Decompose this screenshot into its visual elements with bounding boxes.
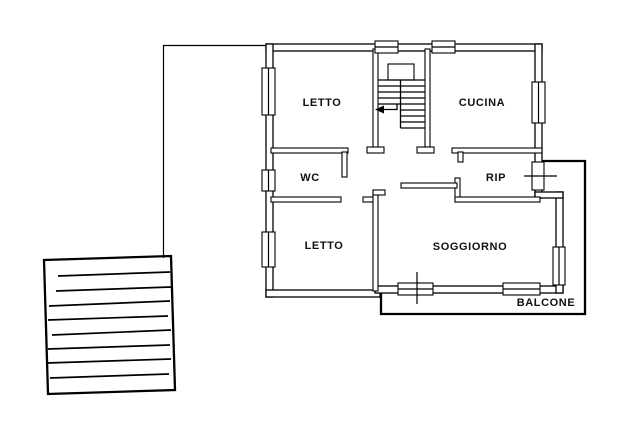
floor-plan-page: LETTO CUCINA WC RIP LETTO SOGGIORNO BALC… [0, 0, 640, 427]
wall-livingroom-left [373, 190, 378, 291]
wall-stair-left-foot [367, 147, 384, 153]
interior-walls [271, 49, 542, 291]
room-label-living-room: SOGGIORNO [433, 241, 507, 253]
wall-stair-left [373, 49, 378, 149]
wall-storage-bottom [455, 197, 540, 202]
room-labels: LETTO CUCINA WC RIP LETTO SOGGIORNO BALC… [300, 97, 575, 309]
room-label-bedroom-1: LETTO [303, 97, 342, 109]
wall-bottom-bedroom2 [266, 290, 380, 297]
wall-kitchen-bottom [452, 148, 542, 153]
wall-top [266, 44, 542, 51]
room-label-storage: RIP [486, 172, 506, 184]
wall-hall-livingroom [401, 183, 457, 188]
window-bedroom1-left [262, 68, 275, 115]
room-label-kitchen: CUCINA [459, 97, 505, 109]
terrace-boundary-lines [164, 45, 268, 258]
floor-plan-drawing: LETTO CUCINA WC RIP LETTO SOGGIORNO BALC… [0, 0, 640, 427]
exterior-walls [266, 44, 563, 297]
stair-treads [378, 80, 425, 128]
window-stairwell-top [375, 41, 398, 53]
window-kitchen-right [532, 82, 545, 123]
canopy-hatch-lines [47, 272, 171, 378]
window-livingroom-bottom [503, 283, 540, 295]
room-label-bathroom: WC [300, 172, 320, 184]
wall-bedroom1-bottom [271, 148, 348, 153]
window-kitchen-top [432, 41, 455, 53]
french-door-livingroom-bottom [398, 272, 433, 304]
wall-kitchen-door-jamb [458, 152, 463, 162]
room-label-bedroom-2: LETTO [305, 240, 344, 252]
wall-stair-right [425, 49, 430, 147]
wall-wc-right [342, 152, 347, 177]
room-label-balcony: BALCONE [517, 297, 576, 309]
wall-livingroom-left-cap [373, 190, 385, 195]
window-storage-right [524, 162, 557, 190]
window-livingroom-right [553, 247, 565, 285]
window-wc-left [262, 170, 275, 191]
canopy-outline [44, 256, 175, 394]
canopy-structure [44, 256, 175, 394]
staircase [375, 64, 425, 128]
wall-wc-bottom [271, 197, 341, 202]
stair-landing [388, 64, 414, 80]
wall-stair-right-foot [417, 147, 434, 153]
window-bedroom2-left [262, 232, 275, 267]
